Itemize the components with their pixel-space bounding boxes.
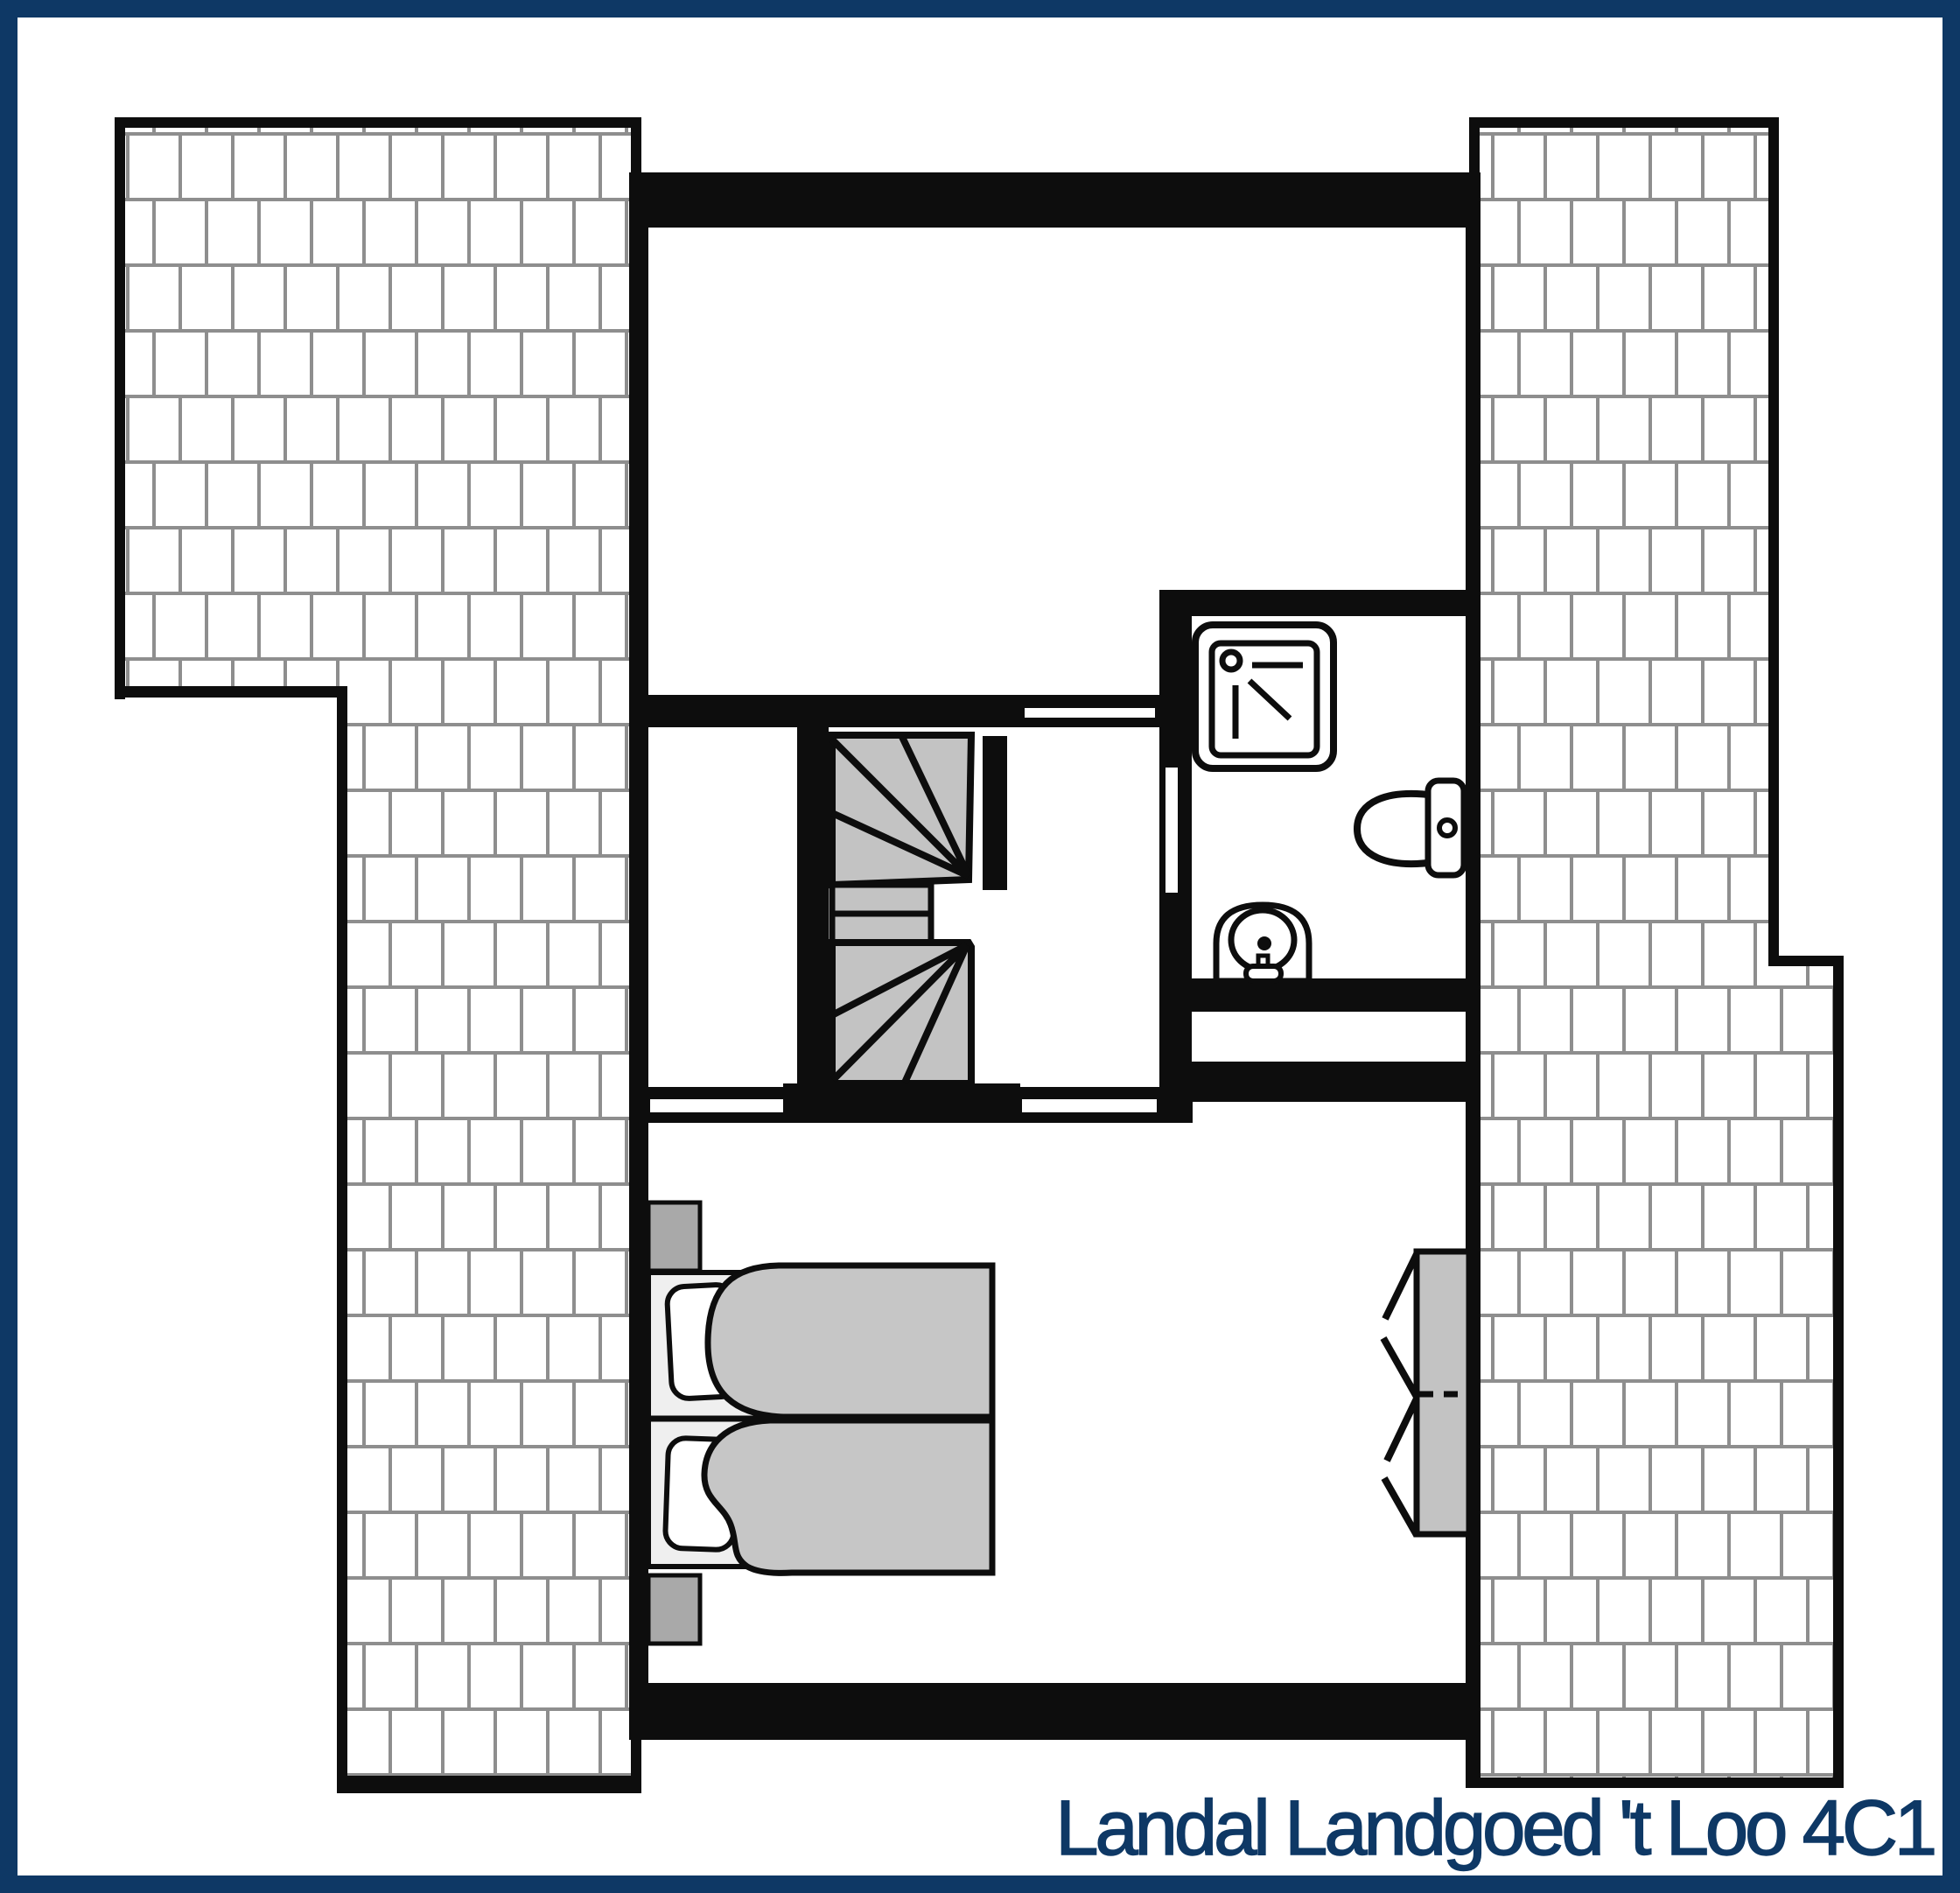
svg-text:Landal Landgoed 't Loo 4C1: Landal Landgoed 't Loo 4C1 — [1055, 1784, 1935, 1871]
